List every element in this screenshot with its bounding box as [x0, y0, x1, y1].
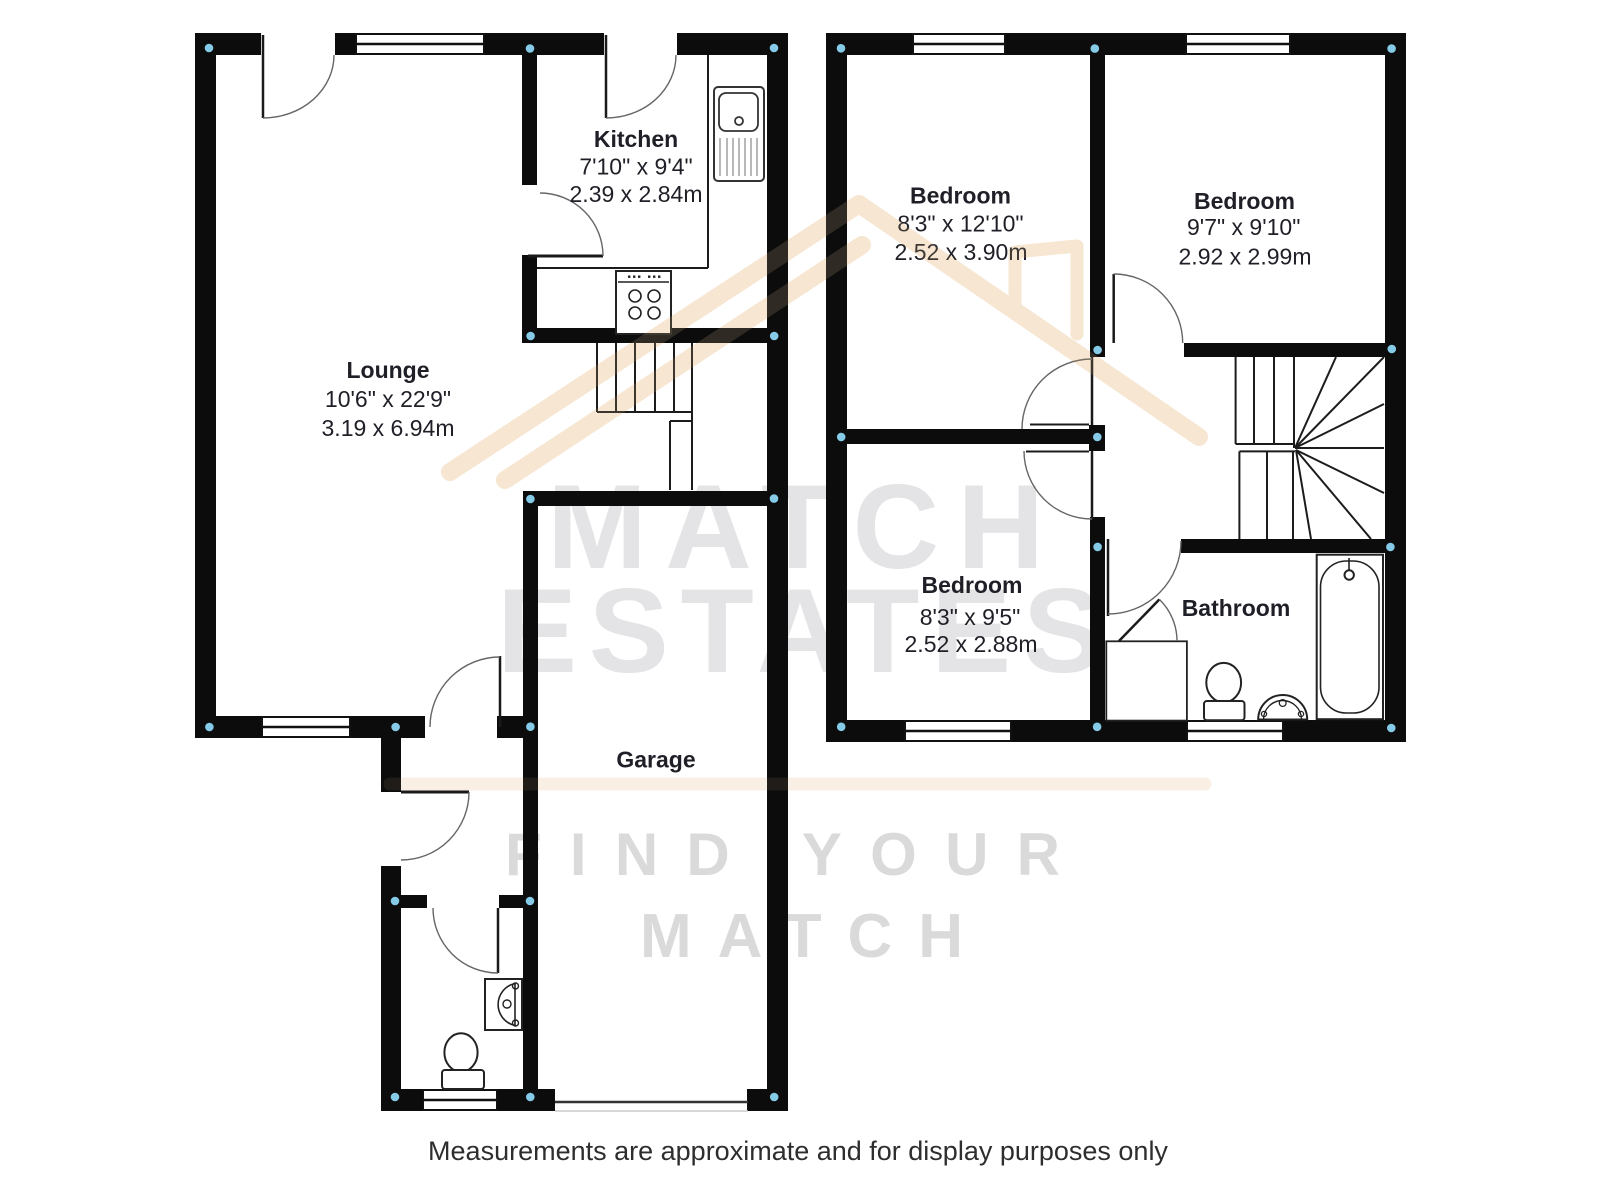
svg-text:Measurements are approximate a: Measurements are approximate and for dis… [428, 1136, 1168, 1166]
svg-text:Bedroom: Bedroom [910, 183, 1011, 209]
svg-text:10'6" x 22'9": 10'6" x 22'9" [325, 386, 451, 412]
svg-text:2.39 x 2.84m: 2.39 x 2.84m [570, 181, 703, 207]
svg-text:Bathroom: Bathroom [1182, 595, 1291, 621]
svg-text:2.52 x 2.88m: 2.52 x 2.88m [905, 631, 1038, 657]
svg-text:9'7" x 9'10": 9'7" x 9'10" [1187, 214, 1300, 240]
svg-text:2.92 x 2.99m: 2.92 x 2.99m [1179, 244, 1312, 270]
svg-text:7'10" x 9'4": 7'10" x 9'4" [579, 154, 692, 180]
svg-text:3.19 x 6.94m: 3.19 x 6.94m [322, 415, 455, 441]
svg-text:Lounge: Lounge [346, 357, 429, 383]
svg-text:Kitchen: Kitchen [594, 126, 678, 152]
svg-text:Garage: Garage [616, 747, 695, 773]
svg-text:Bedroom: Bedroom [1194, 188, 1295, 214]
svg-text:8'3" x 9'5": 8'3" x 9'5" [920, 604, 1021, 630]
svg-text:Bedroom: Bedroom [922, 572, 1023, 598]
